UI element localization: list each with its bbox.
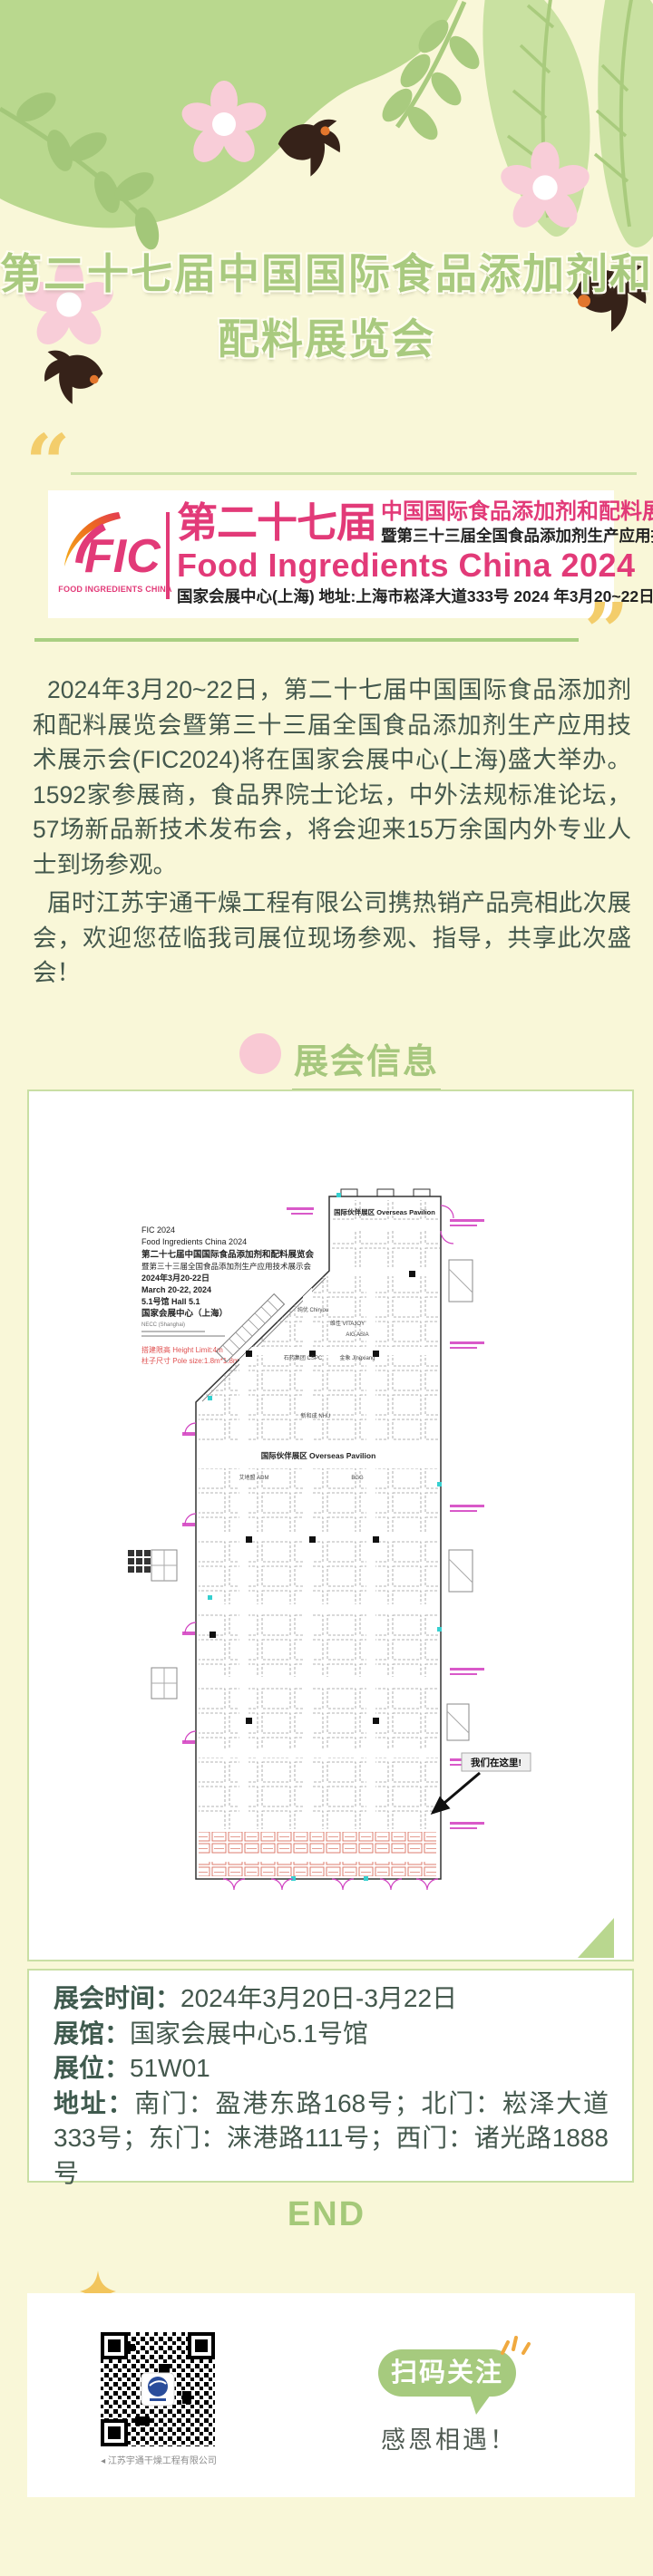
fic-logo-caption: FOOD INGREDIENTS CHINA	[52, 585, 179, 594]
svg-text:金象 Jingxiang: 金象 Jingxiang	[339, 1354, 375, 1361]
intro-text: 2024年3月20~22日，第二十七届中国国际食品添加剂和配料展览会暨第三十三届…	[33, 673, 631, 994]
section-header: 展会信息	[0, 1026, 653, 1080]
info-row-booth: 展位：51W01	[54, 2051, 609, 2087]
intro-paragraph-2: 届时江苏宇通干燥工程有限公司携热销产品亮相此次展会，欢迎您莅临我司展位现场参观、…	[33, 886, 631, 991]
svg-text:暨第三十三届全国食品添加剂生产应用技术展示会: 暨第三十三届全国食品添加剂生产应用技术展示会	[141, 1262, 312, 1271]
company-logo-icon: ◂	[101, 2456, 105, 2466]
page-title-line2: 配料展览会	[0, 306, 653, 372]
svg-text:石药集团 CSPC: 石药集团 CSPC	[284, 1354, 323, 1361]
page-title: 第二十七届中国国际食品添加剂和 配料展览会	[0, 241, 653, 372]
thanks-text: 感恩相遇！	[354, 2420, 544, 2455]
svg-text:艾地盟 ADM: 艾地盟 ADM	[239, 1474, 268, 1481]
svg-text:FIC: FIC	[84, 530, 161, 583]
footer-panel: ◂ 江苏宇通干燥工程有限公司 扫码关注 感恩相遇！	[27, 2293, 635, 2497]
svg-text:BGG: BGG	[351, 1476, 364, 1481]
qr-center-logo	[141, 2373, 174, 2406]
svg-text:纯优 Chiryou: 纯优 Chiryou	[297, 1306, 328, 1313]
folded-corner-icon	[578, 1918, 614, 1958]
info-row-time: 展会时间：2024年3月20日-3月22日	[54, 1981, 609, 2017]
banner-title-cn: 中国国际食品添加剂和配料展览会	[381, 499, 653, 525]
svg-text:新和成 NHU: 新和成 NHU	[301, 1412, 331, 1419]
svg-text:国家会展中心（上海）: 国家会展中心（上海）	[141, 1308, 228, 1319]
svg-text:第二十七届中国国际食品添加剂和配料展览会: 第二十七届中国国际食品添加剂和配料展览会	[141, 1249, 315, 1260]
info-row-address: 地址：南门：盈港东路168号；北门：崧泽大道333号；东门：涞港路111号；西门…	[54, 2087, 609, 2192]
svg-text:5.1号馆 Hall 5.1: 5.1号馆 Hall 5.1	[141, 1296, 200, 1306]
sparkle-lines-icon	[499, 2333, 531, 2362]
pink-dot-icon	[239, 1033, 281, 1074]
svg-text:AIG ASIA: AIG ASIA	[346, 1332, 368, 1338]
pavilion-label-top: 国际伙伴展区 Overseas Pavilion	[334, 1207, 435, 1216]
intro-paragraph-1: 2024年3月20~22日，第二十七届中国国际食品添加剂和配料展览会暨第三十三届…	[33, 673, 631, 882]
qr-code[interactable]	[95, 2328, 220, 2451]
grid-block	[128, 1550, 151, 1573]
info-row-venue: 展馆：国家会展中心5.1号馆	[54, 2017, 609, 2052]
article-page: 第二十七届中国国际食品添加剂和 配料展览会 “ FIC FOOD INGREDI…	[0, 0, 653, 2576]
svg-text:我们在这里!: 我们在这里!	[471, 1757, 521, 1768]
open-quote-icon: “	[25, 437, 70, 491]
info-card: 展会时间：2024年3月20日-3月22日 展馆：国家会展中心5.1号馆 展位：…	[27, 1969, 634, 2183]
divider-line	[71, 472, 637, 475]
svg-text:March 20-22, 2024: March 20-22, 2024	[141, 1285, 211, 1294]
divider-line	[34, 638, 579, 642]
fic-banner: FIC FOOD INGREDIENTS CHINA 第二十七届 中国国际食品添…	[48, 490, 614, 618]
pavilion-label-mid: 国际伙伴展区 Overseas Pavilion	[261, 1451, 376, 1460]
follow-button[interactable]: 扫码关注	[378, 2349, 516, 2397]
banner-edition: 第二十七届	[177, 499, 376, 547]
svg-text:维佳 VITAJOY: 维佳 VITAJOY	[330, 1320, 365, 1327]
svg-text:搭建限高 Height Limit:4m: 搭建限高 Height Limit:4m	[141, 1345, 223, 1354]
exhibition-info: 展会时间：2024年3月20日-3月22日 展馆：国家会展中心5.1号馆 展位：…	[54, 1981, 609, 2191]
end-label: END	[0, 2195, 653, 2234]
bubble-tail	[470, 2395, 491, 2415]
section-title: 展会信息	[292, 1033, 441, 1092]
svg-text:NECC (Shanghai): NECC (Shanghai)	[141, 1322, 185, 1328]
svg-text:FIC 2024: FIC 2024	[141, 1225, 175, 1235]
page-title-line1: 第二十七届中国国际食品添加剂和	[0, 241, 653, 306]
svg-text:2024年3月20-22日: 2024年3月20-22日	[141, 1273, 210, 1283]
banner-title-en: Food Ingredients China 2024	[177, 547, 610, 585]
floorplan-image[interactable]: FIC 2024 Food Ingredients China 2024 第二十…	[64, 1124, 599, 1942]
qr-caption: ◂ 江苏宇通干燥工程有限公司	[54, 2453, 263, 2466]
banner-divider	[166, 512, 170, 599]
banner-venue-line: 国家会展中心(上海) 地址:上海市崧泽大道333号 2024 年3月20~22日	[177, 585, 610, 608]
floorplan-card: FIC 2024 Food Ingredients China 2024 第二十…	[27, 1089, 634, 1961]
close-quote-icon: ”	[584, 605, 629, 660]
svg-text:Food Ingredients China 2024: Food Ingredients China 2024	[141, 1237, 247, 1246]
banner-subtitle-cn: 暨第三十三届全国食品添加剂生产应用技术展示会	[381, 525, 653, 547]
